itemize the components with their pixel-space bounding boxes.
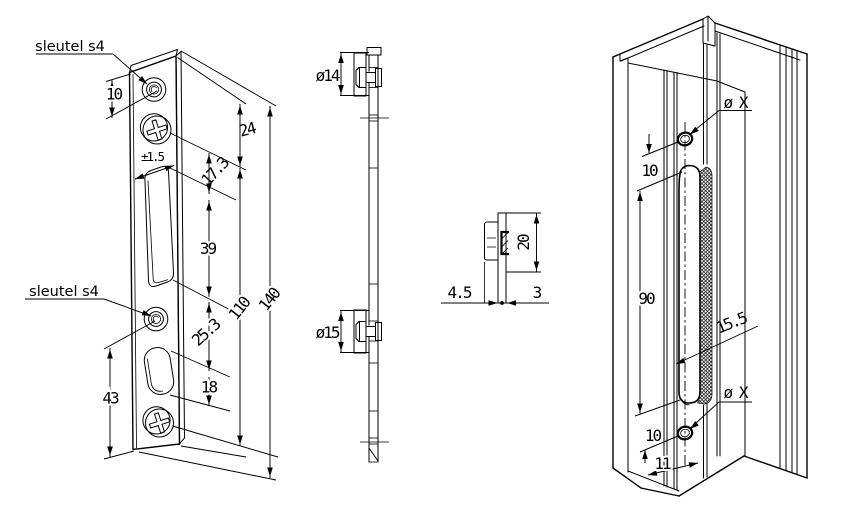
front-view: sleutel s4 sleutel s4 10 24 ±1.5 17.3 39… [25,39,284,480]
section-view: ø14 ø15 [316,48,389,463]
key-label-top: sleutel s4 [35,39,105,55]
dim-10-top: 10 [641,161,658,180]
technical-drawing-page: sleutel s4 sleutel s4 10 24 ±1.5 17.3 39… [0,0,848,512]
top-tab [703,16,715,46]
dim-18: 18 [201,378,218,397]
dim-boss-top-dia: ø14 [316,66,340,85]
countersunk-hole-bottom [144,307,168,331]
plate-top-edge [130,50,178,73]
milled-slot [679,166,712,405]
profile-view: ø X 10 90 15.5 10 ø X 11 [613,16,807,496]
dim-39: 39 [200,239,217,258]
dim-15-5: 15.5 [713,308,750,338]
dim-24: 24 [237,118,258,141]
dim-25-3: 25.3 [188,314,224,349]
detail-plate-edge [498,213,506,303]
dim-20: 20 [514,234,533,251]
dim-boss-bottom-dia: ø15 [316,323,340,342]
detail-view: 20 4.5 3 [441,213,549,306]
right-wall-grooves [780,46,797,475]
latch-slot [145,167,174,287]
detail-flange [485,222,499,260]
center-marks [360,118,389,442]
countersunk-hole-top [142,78,166,102]
dim-10-bottom: 10 [645,426,662,445]
phillips-screw-top [140,114,171,144]
dim-110: 110 [225,293,255,324]
deadbolt-oval [142,346,175,396]
dim-hole-dia-top: ø X [724,93,749,112]
phillips-screw-bottom [143,407,174,437]
section-top-cap [367,48,381,56]
dim-hole-dia-bottom: ø X [724,383,749,402]
dim-3: 3 [533,283,542,302]
dim-tolerance: ±1.5 [141,149,165,164]
dim-11: 11 [654,454,671,473]
section-dimension-lines [340,53,369,353]
detail-clip [502,232,510,255]
dim-140: 140 [255,284,285,315]
dim-90: 90 [638,289,655,308]
dim-43: 43 [102,389,119,408]
key-label-bottom: sleutel s4 [29,284,99,300]
dim-10-left: 10 [106,85,123,104]
strike-plate-drawing: sleutel s4 sleutel s4 10 24 ±1.5 17.3 39… [0,0,848,512]
front-dimension-lines [25,51,278,480]
plate-front-face [130,56,180,450]
plate-side-edge [176,52,185,445]
dim-4-5: 4.5 [448,283,472,302]
chain-dim-dot [500,301,504,305]
section-hatching [354,53,378,462]
